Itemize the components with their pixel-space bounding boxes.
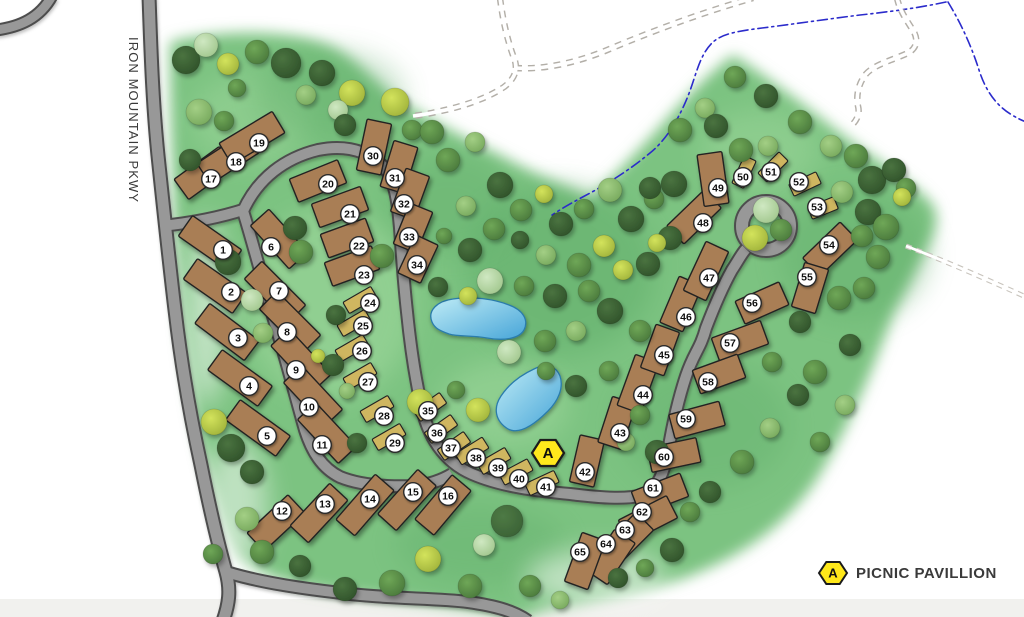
site-number: 23 [358,270,370,282]
site-number-badge-39: 39 [489,459,508,478]
tree [228,79,246,97]
tree [608,568,628,588]
site-number-badge-49: 49 [709,179,728,198]
site-number: 64 [600,539,612,551]
site-number: 32 [398,199,410,211]
tree [379,570,405,596]
tree [598,178,622,202]
site-number-badge-7: 7 [270,282,289,301]
site-number: 14 [364,494,376,506]
site-number: 44 [637,390,649,402]
site-number-badge-56: 56 [743,294,762,313]
site-number: 29 [389,438,401,450]
tree [322,354,344,376]
site-number-badge-64: 64 [597,535,616,554]
tree [537,362,555,380]
site-number: 26 [356,346,368,358]
site-number: 2 [228,287,234,299]
site-number: 31 [389,173,401,185]
site-number-badge-65: 65 [571,543,590,562]
site-number-badge-57: 57 [721,334,740,353]
tree [803,360,827,384]
site-number: 30 [367,151,379,163]
tree [253,323,273,343]
site-number-badge-16: 16 [439,487,458,506]
tree [742,225,768,251]
tree [217,53,239,75]
site-number-badge-52: 52 [790,173,809,192]
tree [730,450,754,474]
tree [283,216,307,240]
site-number: 39 [492,463,504,475]
site-number-badge-50: 50 [734,168,753,187]
tree [402,120,422,140]
site-number-badge-8: 8 [278,323,297,342]
tree [636,559,654,577]
tree [477,268,503,294]
tree [593,235,615,257]
site-number: 20 [322,179,334,191]
tree [217,434,245,462]
site-number: 55 [801,272,813,284]
site-number: 46 [680,312,692,324]
site-number-badge-18: 18 [227,153,246,172]
tree [820,135,842,157]
site-number-badge-19: 19 [250,134,269,153]
tree [203,544,223,564]
map-canvas: A 12345678910111213141516171819202122232… [0,0,1024,617]
tree [597,298,623,324]
site-number-badge-51: 51 [762,163,781,182]
site-number-badge-31: 31 [386,169,405,188]
site-number: 61 [647,483,659,495]
tree [271,48,301,78]
tree [420,120,444,144]
tree [680,502,700,522]
site-number-badge-15: 15 [404,483,423,502]
site-number: 7 [276,286,282,298]
tree [370,244,394,268]
tree [514,276,534,296]
site-number: 37 [445,443,457,455]
tree [704,114,728,138]
tree [487,172,513,198]
tree [289,555,311,577]
tree [754,84,778,108]
tree [510,199,532,221]
tree [497,340,521,364]
site-number-badge-35: 35 [419,402,438,421]
site-number-badge-63: 63 [616,521,635,540]
pavilion-symbol: A [543,445,554,462]
site-number: 16 [442,491,454,503]
site-number: 34 [411,260,423,272]
site-number: 4 [246,381,252,393]
tree [241,289,263,311]
site-number: 13 [319,499,331,511]
site-number-badge-12: 12 [273,502,292,521]
tree [578,280,600,302]
site-number: 49 [712,183,724,195]
site-number: 5 [264,431,270,443]
site-number-badge-32: 32 [395,195,414,214]
site-number-badge-20: 20 [319,175,338,194]
site-number: 25 [357,321,369,333]
site-number: 12 [276,506,288,518]
tree [339,383,355,399]
site-number: 36 [431,428,443,440]
tree [699,481,721,503]
legend-symbol: A [828,566,838,581]
tree [186,99,212,125]
site-number: 38 [470,453,482,465]
tree [613,260,633,280]
site-number-badge-23: 23 [355,266,374,285]
tree [511,231,529,249]
tree [758,136,778,156]
tree [788,110,812,134]
site-number-badge-44: 44 [634,386,653,405]
tree [618,206,644,232]
site-number-badge-22: 22 [350,237,369,256]
tree [245,40,269,64]
site-number-badge-28: 28 [375,407,394,426]
site-number-badge-38: 38 [467,449,486,468]
tree [466,398,490,422]
tree [853,277,875,299]
tree [789,311,811,333]
site-number: 40 [513,474,525,486]
tree [810,432,830,452]
site-number-badge-17: 17 [202,170,221,189]
site-number-badge-59: 59 [677,410,696,429]
site-number-badge-2: 2 [222,283,241,302]
tree [447,381,465,399]
tree [566,321,586,341]
site-number: 9 [293,365,299,377]
site-number: 56 [746,298,758,310]
legend-label: PICNIC PAVILLION [856,565,997,582]
site-number-badge-9: 9 [287,361,306,380]
tree [326,305,346,325]
tree [753,197,779,223]
tree [762,352,782,372]
tree [334,114,356,136]
site-number: 11 [316,440,327,452]
tree [436,228,452,244]
tree [630,405,650,425]
tree [483,218,505,240]
site-number-badge-43: 43 [611,424,630,443]
campground-site-map: A 12345678910111213141516171819202122232… [0,0,1024,617]
site-number-badge-60: 60 [655,448,674,467]
site-number: 60 [658,452,670,464]
tree [629,320,651,342]
site-number-badge-26: 26 [353,342,372,361]
tree [289,240,313,264]
site-number-badge-36: 36 [428,424,447,443]
tree [873,214,899,240]
tree [729,138,753,162]
tree [770,219,792,241]
site-number-badge-53: 53 [808,198,827,217]
site-number-badge-48: 48 [694,214,713,233]
site-number: 63 [619,525,631,537]
tree [567,253,591,277]
site-number-badge-37: 37 [442,439,461,458]
tree [787,384,809,406]
site-number: 22 [353,241,365,253]
site-number: 8 [284,327,290,339]
tree [536,245,556,265]
site-number: 54 [823,240,835,252]
site-number-badge-3: 3 [229,329,248,348]
site-number: 57 [724,338,736,350]
site-number-badge-27: 27 [359,373,378,392]
site-number-badge-41: 41 [537,478,556,497]
site-number: 3 [235,333,241,345]
site-number-badge-10: 10 [300,398,319,417]
site-number-badge-25: 25 [354,317,373,336]
tree [458,574,482,598]
tree [574,199,594,219]
site-number: 52 [793,177,805,189]
tree [201,409,227,435]
tree [240,460,264,484]
site-number-badge-46: 46 [677,308,696,327]
tree [831,181,853,203]
site-number-badge-6: 6 [262,238,281,257]
tree [214,111,234,131]
tree [347,433,367,453]
tree [473,534,495,556]
tree [839,334,861,356]
site-number-badge-1: 1 [214,241,233,260]
tree [835,395,855,415]
tree [639,177,661,199]
tree [309,60,335,86]
tree [760,418,780,438]
tree [436,148,460,172]
site-number: 48 [697,218,709,230]
tree [543,284,567,308]
site-number: 1 [220,245,226,257]
tree [668,118,692,142]
tree [661,171,687,197]
site-number: 50 [737,172,749,184]
tree [636,252,660,276]
site-number: 19 [253,138,265,150]
tree [456,196,476,216]
tree [893,188,911,206]
site-number: 28 [378,411,390,423]
site-number-badge-14: 14 [361,490,380,509]
site-number: 58 [702,377,714,389]
pavilion-markers-layer: A [532,440,564,466]
tree [851,225,873,247]
site-number: 33 [403,232,415,244]
site-number: 6 [268,242,274,254]
site-number-badge-40: 40 [510,470,529,489]
tree [660,538,684,562]
tree [724,66,746,88]
site-number-badge-42: 42 [576,463,595,482]
tree [866,245,890,269]
picnic-pavilion-marker: A [532,440,564,466]
site-number: 18 [230,157,242,169]
site-number-badge-34: 34 [408,256,427,275]
tree [235,507,259,531]
site-number-badge-54: 54 [820,236,839,255]
site-number-badge-45: 45 [655,346,674,365]
tree [844,144,868,168]
tree [648,234,666,252]
site-number: 21 [344,209,356,221]
tree [179,149,201,171]
site-number-badge-58: 58 [699,373,718,392]
site-number: 10 [303,402,315,414]
site-number-badge-21: 21 [341,205,360,224]
tree [565,375,587,397]
site-number: 45 [658,350,670,362]
tree [194,33,218,57]
site-number: 42 [579,467,591,479]
site-number-badge-13: 13 [316,495,335,514]
site-number-badge-11: 11 [313,436,332,455]
site-number-badge-55: 55 [798,268,817,287]
tree [827,286,851,310]
tree [415,546,441,572]
tree [459,287,477,305]
site-number-badge-62: 62 [633,503,652,522]
tree [428,277,448,297]
road-name-label: IRON MOUNTAIN PKWY [126,37,141,203]
tree [250,540,274,564]
tree [534,330,556,352]
tree [458,238,482,262]
site-number-badge-29: 29 [386,434,405,453]
site-number-badge-33: 33 [400,228,419,247]
site-number: 65 [574,547,586,559]
site-number: 17 [205,174,217,186]
tree [599,361,619,381]
tree [535,185,553,203]
tree [491,505,523,537]
tree [549,212,573,236]
site-number-badge-24: 24 [361,294,380,313]
site-number-badge-30: 30 [364,147,383,166]
tree [333,577,357,601]
site-number: 51 [765,167,777,179]
site-number: 53 [811,202,823,214]
labels-layer: IRON MOUNTAIN PKWY [126,37,141,203]
site-number: 15 [407,487,419,499]
site-number: 59 [680,414,692,426]
tree [311,349,325,363]
site-number: 47 [703,273,715,285]
site-number: 62 [636,507,648,519]
tree [551,591,569,609]
site-number: 24 [364,298,376,310]
tree [465,132,485,152]
site-number-badge-4: 4 [240,377,259,396]
site-number: 43 [614,428,626,440]
tree [296,85,316,105]
site-number-badge-47: 47 [700,269,719,288]
tree [381,88,409,116]
site-number: 35 [422,406,434,418]
site-number: 27 [362,377,374,389]
site-number-badge-61: 61 [644,479,663,498]
tree [519,575,541,597]
site-number-badge-5: 5 [258,427,277,446]
site-number: 41 [540,482,552,494]
